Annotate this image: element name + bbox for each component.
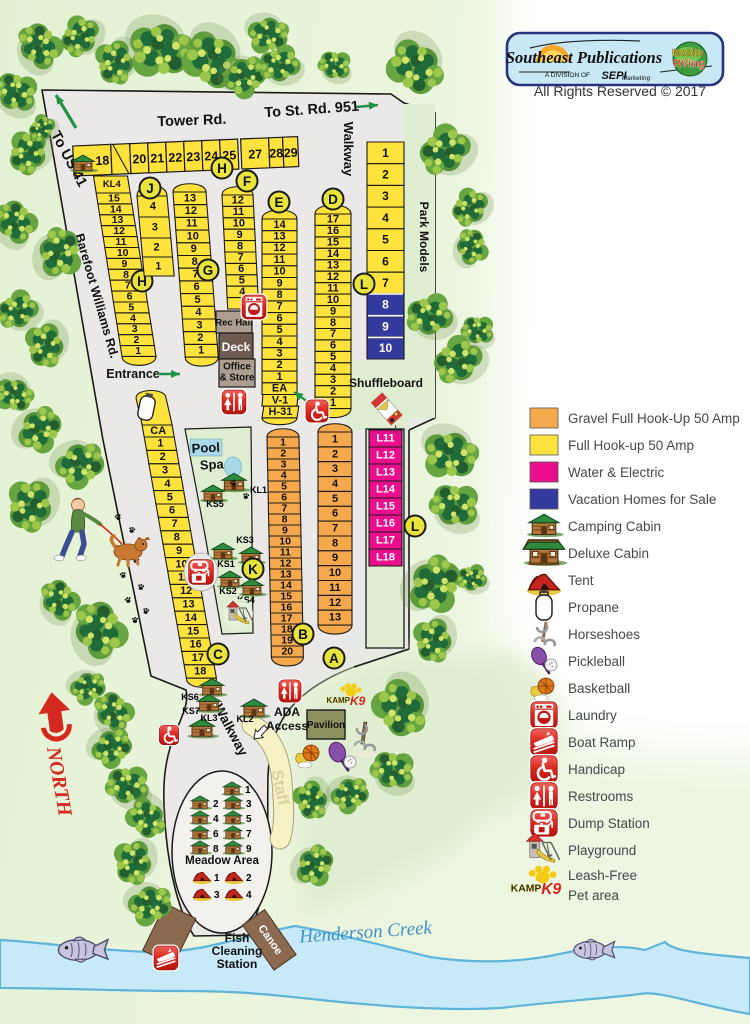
svg-text:23: 23	[186, 150, 201, 165]
svg-text:3: 3	[332, 463, 338, 475]
svg-text:3: 3	[152, 222, 158, 234]
svg-text:27: 27	[248, 147, 263, 162]
svg-text:Spa: Spa	[199, 456, 224, 472]
svg-text:12: 12	[185, 205, 197, 217]
svg-text:18: 18	[95, 154, 110, 169]
svg-text:2: 2	[332, 448, 338, 460]
svg-text:EA: EA	[272, 383, 287, 395]
svg-text:10: 10	[273, 266, 285, 278]
svg-text:4: 4	[195, 307, 202, 319]
svg-text:KL4: KL4	[103, 179, 122, 190]
svg-text:11: 11	[233, 206, 245, 218]
svg-text:22: 22	[168, 150, 183, 165]
svg-text:12: 12	[232, 195, 244, 207]
svg-text:G: G	[203, 263, 214, 278]
svg-text:9: 9	[276, 277, 282, 289]
svg-text:21: 21	[150, 151, 165, 166]
svg-text:10: 10	[233, 218, 245, 230]
svg-text:L: L	[411, 519, 419, 534]
svg-text:Deluxe Cabin: Deluxe Cabin	[568, 546, 649, 561]
svg-text:F: F	[243, 174, 251, 189]
svg-text:14: 14	[185, 612, 198, 624]
svg-text:7: 7	[171, 518, 177, 530]
svg-text:B: B	[298, 627, 308, 642]
svg-text:6: 6	[213, 829, 219, 840]
svg-text:10: 10	[327, 294, 339, 306]
svg-text:Entrance: Entrance	[106, 367, 160, 381]
svg-text:17: 17	[327, 214, 339, 226]
svg-text:Propane: Propane	[568, 600, 619, 615]
svg-text:7: 7	[276, 301, 282, 313]
svg-text:Playground: Playground	[568, 843, 636, 858]
svg-text:L: L	[360, 277, 368, 292]
svg-text:5: 5	[276, 324, 282, 336]
svg-text:1: 1	[330, 397, 336, 409]
svg-text:12: 12	[327, 271, 339, 283]
svg-text:Access: Access	[266, 719, 308, 733]
svg-text:CA: CA	[150, 425, 166, 437]
svg-text:Basketball: Basketball	[568, 681, 630, 696]
svg-text:Marketing: Marketing	[622, 75, 651, 82]
svg-text:6: 6	[330, 340, 336, 352]
svg-text:4: 4	[332, 478, 339, 490]
svg-text:5: 5	[330, 351, 336, 363]
svg-text:D: D	[328, 192, 338, 207]
svg-text:KS5: KS5	[206, 499, 224, 509]
svg-text:4: 4	[150, 201, 157, 213]
svg-text:14: 14	[273, 219, 286, 231]
svg-text:1: 1	[382, 146, 389, 160]
svg-text:3: 3	[382, 189, 389, 203]
svg-text:Office: Office	[223, 362, 251, 373]
svg-text:15: 15	[187, 625, 199, 637]
svg-text:20: 20	[132, 152, 147, 167]
svg-text:28: 28	[269, 146, 284, 161]
svg-text:7: 7	[246, 829, 252, 840]
svg-text:1: 1	[276, 371, 282, 383]
svg-text:4: 4	[276, 336, 283, 348]
svg-text:16: 16	[189, 639, 201, 651]
svg-text:Cleaning: Cleaning	[212, 944, 263, 958]
svg-text:Fish: Fish	[225, 931, 250, 945]
svg-text:L17: L17	[376, 535, 395, 547]
svg-text:3: 3	[162, 465, 168, 477]
svg-text:15: 15	[327, 237, 339, 249]
svg-text:L15: L15	[376, 501, 395, 513]
svg-text:5: 5	[239, 275, 245, 287]
svg-text:2: 2	[330, 386, 336, 398]
svg-text:KL2: KL2	[236, 714, 253, 724]
svg-text:Leash-Free: Leash-Free	[568, 868, 637, 883]
svg-text:K9: K9	[350, 694, 366, 708]
svg-text:20: 20	[281, 646, 293, 658]
svg-text:5: 5	[246, 814, 252, 825]
svg-text:RVing: RVing	[673, 58, 704, 70]
svg-text:18: 18	[194, 666, 206, 678]
svg-text:L18: L18	[376, 552, 395, 564]
svg-text:KS3: KS3	[236, 535, 254, 545]
svg-text:All Rights Reserved © 2017: All Rights Reserved © 2017	[534, 83, 706, 99]
svg-text:9: 9	[176, 545, 182, 557]
svg-text:6: 6	[193, 281, 199, 293]
svg-text:3: 3	[196, 319, 202, 331]
svg-text:Laundry: Laundry	[568, 708, 617, 723]
svg-text:Full Hook-up 50 Amp: Full Hook-up 50 Amp	[568, 438, 694, 453]
svg-text:2: 2	[160, 451, 166, 463]
svg-text:8: 8	[192, 256, 198, 268]
svg-text:A DIVISION OF: A DIVISION OF	[545, 72, 590, 79]
svg-text:9: 9	[330, 305, 336, 317]
svg-text:14: 14	[327, 248, 340, 260]
svg-text:H-31: H-31	[268, 406, 292, 418]
svg-text:Tent: Tent	[568, 573, 594, 588]
svg-text:H: H	[217, 161, 227, 176]
svg-text:KL3: KL3	[200, 713, 217, 723]
svg-text:12: 12	[329, 597, 341, 609]
svg-text:1: 1	[157, 438, 163, 450]
svg-text:13: 13	[327, 260, 339, 272]
svg-text:2: 2	[382, 168, 389, 182]
svg-text:6: 6	[169, 505, 175, 517]
svg-text:5: 5	[194, 294, 200, 306]
svg-text:5: 5	[167, 491, 173, 503]
svg-text:ADA: ADA	[274, 705, 300, 719]
svg-text:4: 4	[164, 478, 171, 490]
svg-text:1: 1	[198, 345, 204, 357]
svg-text:Deck: Deck	[222, 340, 251, 354]
svg-text:Camping Cabin: Camping Cabin	[568, 519, 661, 534]
svg-text:13: 13	[273, 231, 285, 243]
svg-text:KAMP: KAMP	[326, 696, 350, 705]
svg-text:29: 29	[283, 146, 298, 161]
svg-text:7: 7	[238, 252, 244, 264]
svg-text:Pickleball: Pickleball	[568, 654, 625, 669]
svg-text:7: 7	[330, 328, 336, 340]
svg-text:16: 16	[327, 225, 339, 237]
svg-text:Horseshoes: Horseshoes	[568, 627, 640, 642]
svg-text:3: 3	[214, 890, 220, 901]
svg-text:KS1: KS1	[217, 559, 235, 569]
svg-text:4: 4	[330, 363, 337, 375]
svg-text:6: 6	[238, 263, 244, 275]
svg-text:Meadow Area: Meadow Area	[185, 855, 259, 867]
svg-text:Dump Station: Dump Station	[568, 816, 650, 831]
svg-text:KS7: KS7	[182, 706, 200, 716]
svg-text:C: C	[213, 647, 223, 662]
svg-text:K9: K9	[541, 881, 561, 898]
svg-text:11: 11	[329, 582, 341, 594]
svg-text:10: 10	[329, 567, 341, 579]
svg-text:KS6: KS6	[181, 692, 199, 702]
svg-text:6: 6	[332, 508, 338, 520]
svg-text:Park Models: Park Models	[417, 202, 431, 273]
svg-text:KAMP: KAMP	[511, 884, 542, 895]
svg-text:17: 17	[192, 652, 204, 664]
svg-text:2: 2	[246, 873, 252, 884]
svg-text:6: 6	[276, 312, 282, 324]
svg-text:Pool: Pool	[191, 440, 220, 456]
svg-text:Pavilion: Pavilion	[307, 720, 345, 731]
svg-text:& Store: & Store	[220, 373, 255, 384]
svg-text:5: 5	[332, 493, 338, 505]
svg-text:L14: L14	[376, 484, 396, 496]
svg-text:Restrooms: Restrooms	[568, 789, 634, 804]
svg-text:12: 12	[273, 242, 285, 254]
svg-text:13: 13	[182, 599, 194, 611]
svg-text:Southeast Publications: Southeast Publications	[506, 48, 662, 67]
svg-text:K: K	[248, 562, 258, 577]
svg-text:Pet area: Pet area	[568, 888, 620, 903]
svg-text:8: 8	[332, 537, 338, 549]
svg-text:1: 1	[214, 873, 220, 884]
svg-text:L13: L13	[376, 467, 395, 479]
svg-text:7: 7	[382, 276, 389, 290]
svg-text:9: 9	[236, 229, 242, 241]
svg-text:9: 9	[332, 552, 338, 564]
svg-text:4: 4	[382, 211, 389, 225]
svg-text:Boat Ramp: Boat Ramp	[568, 735, 636, 750]
svg-text:6: 6	[382, 254, 389, 268]
svg-text:11: 11	[186, 218, 198, 230]
svg-text:Water & Electric: Water & Electric	[568, 465, 665, 480]
svg-text:8: 8	[276, 289, 282, 301]
svg-text:1: 1	[155, 261, 161, 273]
svg-text:Tower Rd.: Tower Rd.	[157, 112, 227, 130]
svg-text:8: 8	[237, 240, 243, 252]
svg-text:8: 8	[330, 317, 336, 329]
svg-text:4: 4	[246, 890, 252, 901]
svg-text:E: E	[274, 195, 283, 210]
svg-text:1: 1	[332, 433, 338, 445]
svg-text:Walkway: Walkway	[341, 122, 356, 177]
svg-text:8: 8	[174, 532, 180, 544]
svg-text:2: 2	[197, 332, 203, 344]
svg-text:J: J	[146, 181, 154, 196]
svg-text:3: 3	[246, 799, 252, 810]
svg-text:2: 2	[213, 799, 219, 810]
svg-text:11: 11	[274, 254, 286, 266]
svg-text:L11: L11	[376, 433, 394, 445]
svg-text:10: 10	[187, 230, 199, 242]
svg-text:Station: Station	[217, 957, 258, 971]
svg-text:11: 11	[327, 282, 339, 294]
svg-text:KL1: KL1	[250, 485, 267, 495]
svg-text:7: 7	[332, 523, 338, 535]
svg-text:5: 5	[382, 233, 389, 247]
svg-text:9: 9	[382, 319, 389, 333]
svg-text:2: 2	[154, 242, 160, 254]
svg-text:2: 2	[276, 359, 282, 371]
svg-text:Shuffleboard: Shuffleboard	[349, 376, 423, 390]
svg-text:4: 4	[213, 814, 219, 825]
svg-text:Vacation Homes for Sale: Vacation Homes for Sale	[568, 492, 716, 507]
svg-text:Handicap: Handicap	[568, 762, 625, 777]
svg-text:13: 13	[184, 192, 196, 204]
svg-text:A: A	[329, 651, 339, 666]
svg-text:10: 10	[379, 341, 393, 355]
svg-text:9: 9	[191, 243, 197, 255]
svg-text:V-1: V-1	[272, 394, 289, 406]
svg-text:8: 8	[213, 844, 219, 855]
svg-text:1: 1	[135, 345, 141, 357]
svg-text:8: 8	[382, 298, 389, 312]
svg-text:KS2: KS2	[219, 586, 237, 596]
svg-text:Gravel Full Hook-Up 50 Amp: Gravel Full Hook-Up 50 Amp	[568, 411, 740, 426]
svg-text:3: 3	[330, 374, 336, 386]
svg-text:1: 1	[245, 785, 251, 796]
svg-text:L12: L12	[376, 450, 395, 462]
svg-text:13: 13	[329, 612, 341, 624]
svg-text:3: 3	[276, 348, 282, 360]
svg-text:L16: L16	[376, 518, 395, 530]
svg-text:9: 9	[246, 844, 252, 855]
